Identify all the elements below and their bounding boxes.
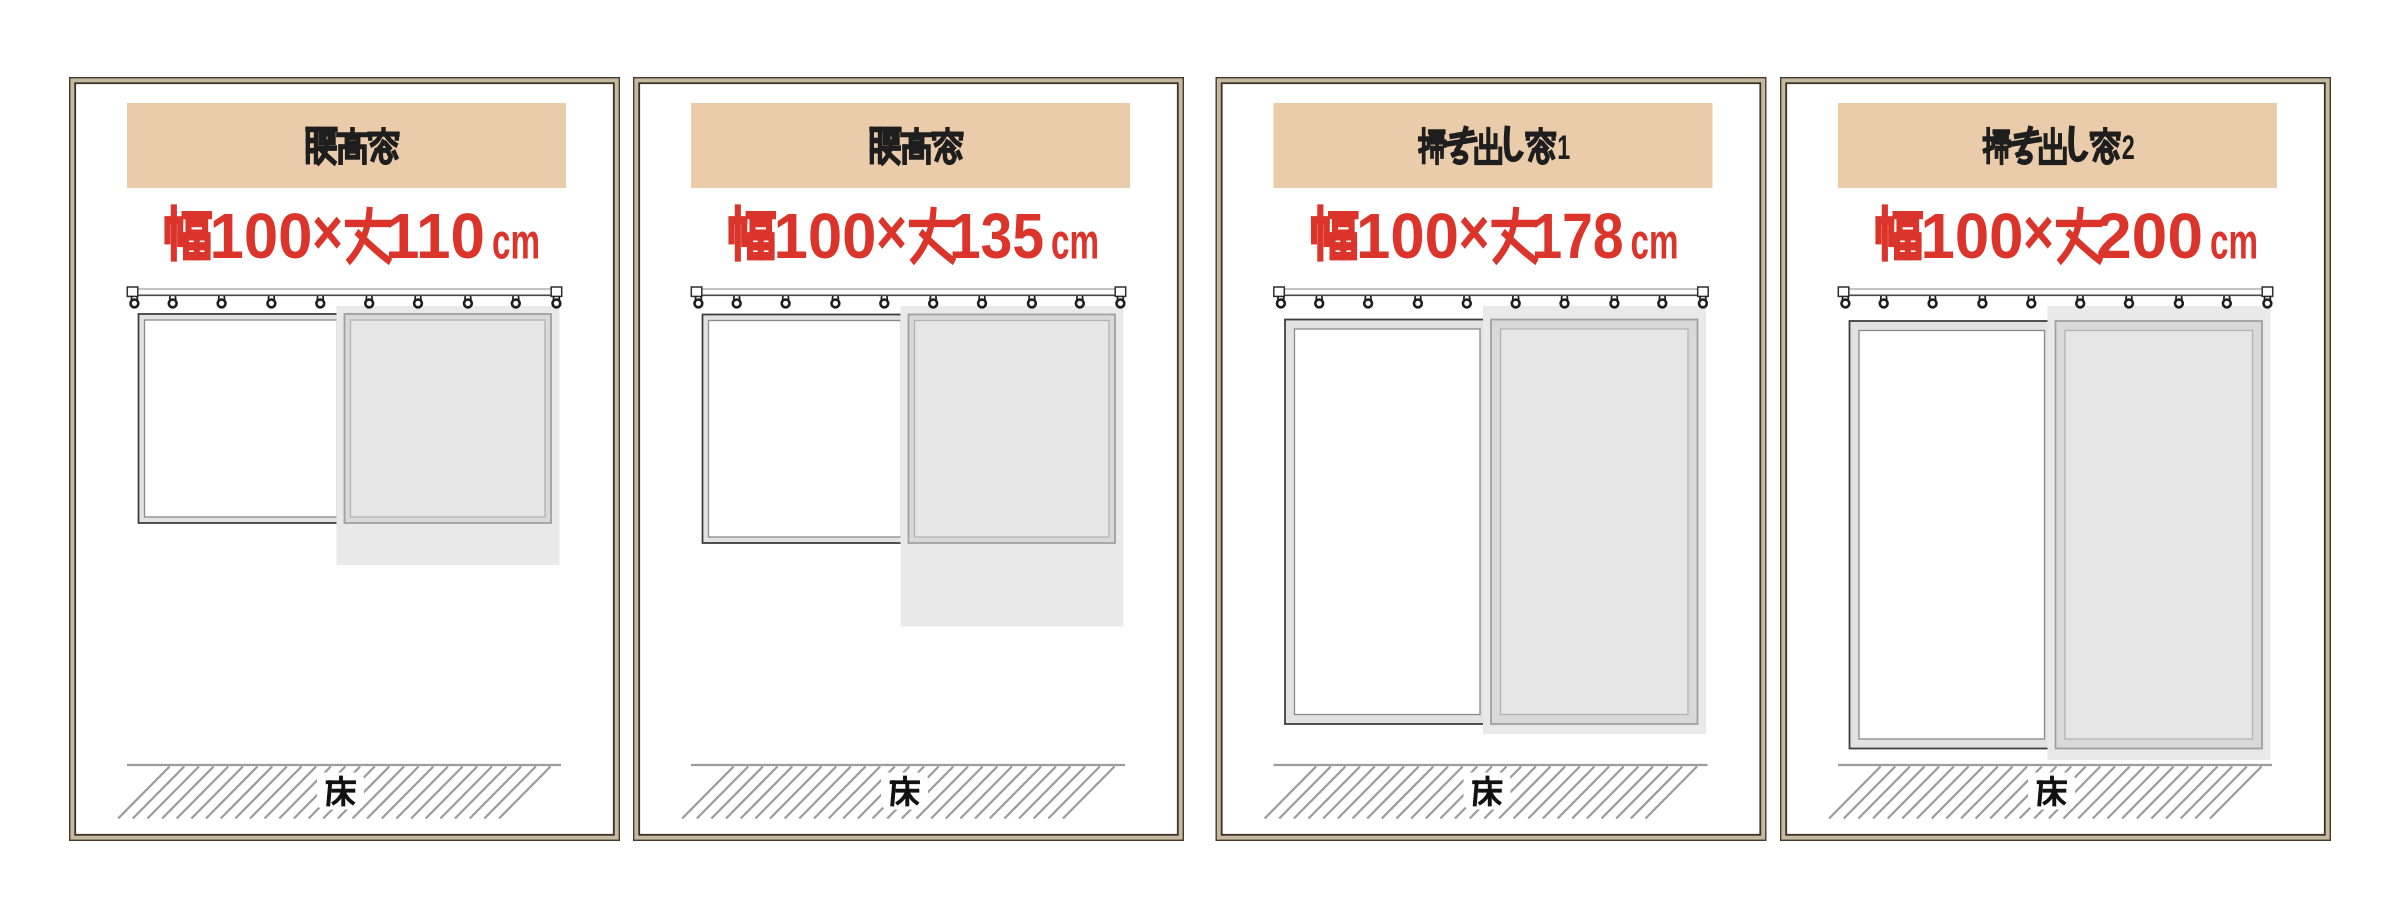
svg-text:135: 135 [949,200,1044,272]
svg-text:100: 100 [210,200,313,272]
svg-text:cm: cm [492,214,540,270]
svg-text:1: 1 [1557,129,1570,167]
svg-text:178: 178 [1532,200,1624,272]
svg-text:×: × [2023,196,2054,268]
svg-text:cm: cm [1051,214,1099,270]
svg-text:110: 110 [385,200,485,272]
svg-text:200: 200 [2096,200,2203,272]
svg-text:×: × [1459,196,1490,268]
svg-text:×: × [312,196,343,268]
svg-text:100: 100 [774,200,877,272]
svg-text:2: 2 [2122,129,2135,167]
svg-text:cm: cm [2210,214,2258,270]
svg-text:100: 100 [1356,200,1459,272]
svg-text:100: 100 [1921,200,2024,272]
svg-text:cm: cm [1631,214,1679,270]
svg-text:×: × [876,196,907,268]
